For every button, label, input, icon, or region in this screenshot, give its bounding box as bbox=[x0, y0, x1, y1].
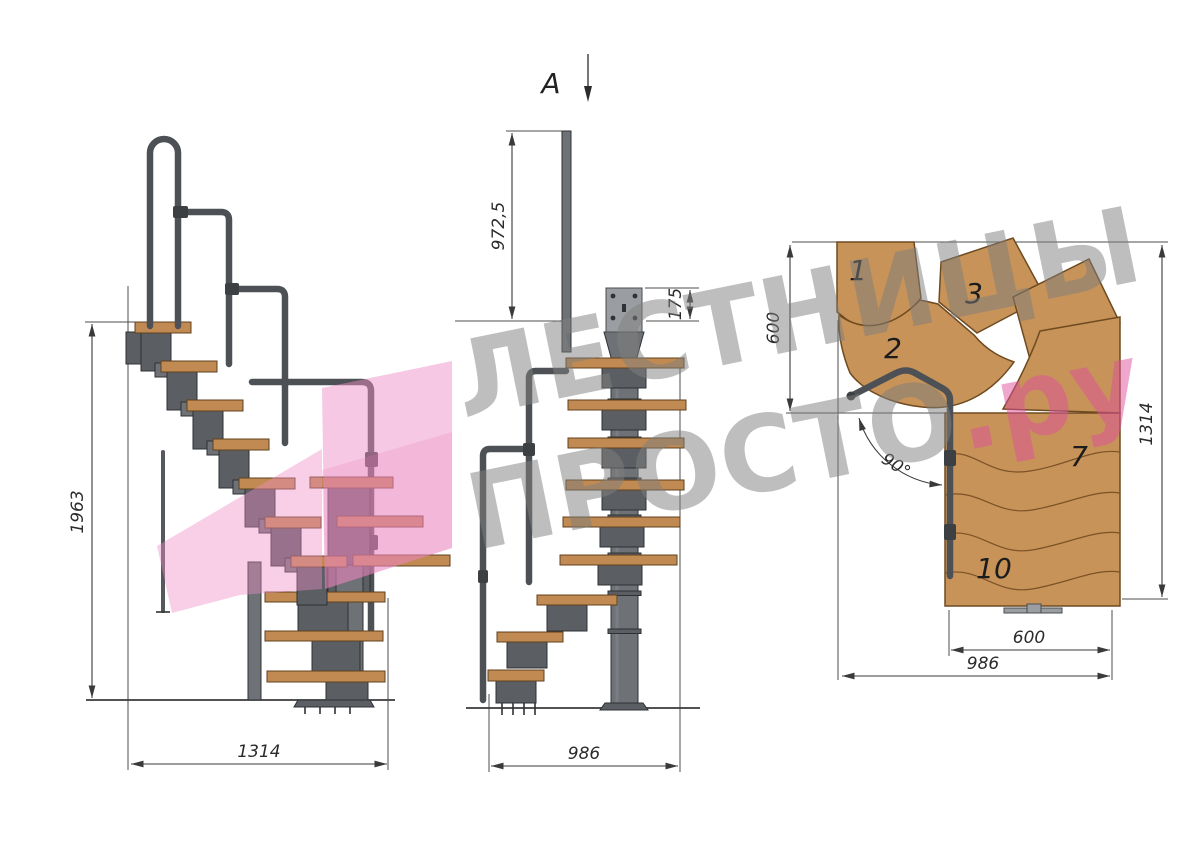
handrail-segment-2 bbox=[178, 212, 229, 364]
drawing-svg: 1963 1314 A bbox=[0, 0, 1200, 849]
dim-side-length: 1314 bbox=[237, 742, 280, 762]
dim-plan-flight-width: 600 bbox=[1013, 628, 1045, 648]
handrail-segment-3 bbox=[232, 289, 285, 443]
section-arrow-icon bbox=[584, 86, 592, 102]
step-number-10: 10 bbox=[976, 552, 1012, 585]
staircase-technical-drawing: 1963 1314 A bbox=[0, 0, 1200, 849]
anchor-feet bbox=[305, 707, 350, 714]
anchor-feet bbox=[502, 703, 535, 715]
section-marker: A bbox=[539, 54, 592, 102]
handrail-loop bbox=[150, 139, 178, 326]
dim-front-width: 986 bbox=[568, 744, 601, 764]
dim-side-height: 1963 bbox=[68, 490, 88, 533]
dim-plan-total-width: 986 bbox=[967, 654, 1000, 674]
section-marker-label: A bbox=[539, 67, 560, 100]
wall-plate bbox=[126, 332, 142, 364]
dim-rail-height: 972,5 bbox=[489, 202, 509, 251]
